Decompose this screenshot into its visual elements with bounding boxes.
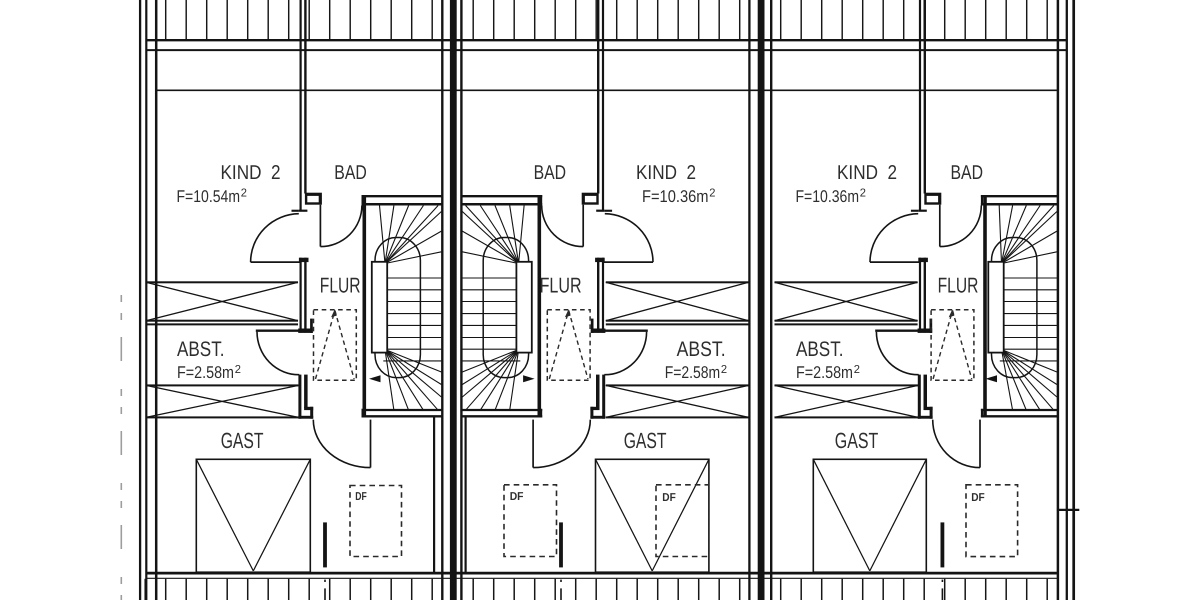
svg-text:DF: DF (662, 492, 676, 504)
svg-text:DF: DF (971, 492, 985, 504)
svg-text:GAST: GAST (221, 428, 264, 453)
svg-text:2: 2 (721, 364, 727, 376)
svg-text:F=2.58m: F=2.58m (665, 363, 721, 382)
svg-text:ABST.: ABST. (796, 338, 844, 361)
svg-text:2: 2 (854, 364, 860, 376)
svg-text:FLUR: FLUR (320, 273, 361, 297)
svg-text:2: 2 (241, 188, 247, 200)
svg-text:FLUR: FLUR (540, 273, 582, 297)
svg-text:DF: DF (510, 491, 524, 503)
svg-text:KIND 2: KIND 2 (221, 162, 281, 184)
svg-text:GAST: GAST (624, 428, 667, 453)
svg-text:F=2.58m: F=2.58m (796, 363, 853, 382)
svg-text:2: 2 (860, 188, 866, 200)
svg-text:ABST.: ABST. (177, 338, 225, 361)
svg-text:BAD: BAD (534, 162, 567, 184)
svg-text:KIND 2: KIND 2 (837, 162, 897, 184)
svg-text:F=10.36m: F=10.36m (642, 187, 709, 206)
svg-text:KIND 2: KIND 2 (636, 162, 696, 184)
svg-text:BAD: BAD (334, 162, 367, 184)
svg-text:BAD: BAD (951, 162, 984, 184)
svg-text:GAST: GAST (835, 428, 879, 453)
svg-text:F=10.54m: F=10.54m (177, 187, 241, 206)
svg-text:DF: DF (355, 491, 367, 503)
svg-text:2: 2 (235, 364, 241, 376)
svg-text:ABST.: ABST. (677, 338, 726, 361)
svg-text:2: 2 (709, 188, 715, 200)
svg-text:FLUR: FLUR (938, 273, 979, 297)
svg-text:F=10.36m: F=10.36m (796, 187, 860, 206)
svg-text:F=2.58m: F=2.58m (177, 363, 234, 382)
